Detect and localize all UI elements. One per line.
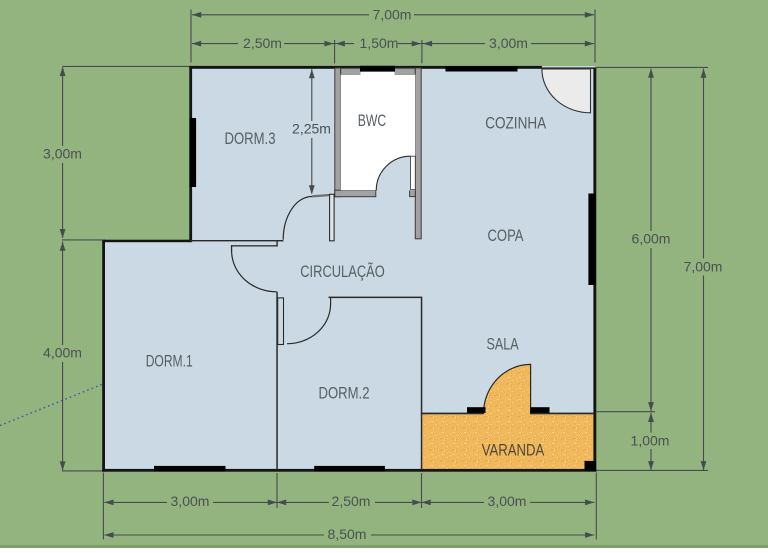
svg-text:3,00m: 3,00m [171, 493, 210, 509]
svg-text:3,00m: 3,00m [489, 35, 528, 51]
svg-text:COZINHA: COZINHA [485, 114, 546, 132]
svg-text:DORM.1: DORM.1 [146, 353, 193, 371]
svg-text:1,00m: 1,00m [631, 432, 670, 448]
svg-text:2,50m: 2,50m [332, 493, 371, 509]
svg-text:BWC: BWC [358, 112, 387, 130]
svg-text:DORM.3: DORM.3 [225, 130, 276, 148]
svg-text:1,50m: 1,50m [360, 35, 399, 51]
svg-text:DORM.2: DORM.2 [319, 384, 370, 402]
svg-text:3,00m: 3,00m [488, 493, 527, 509]
svg-text:2,50m: 2,50m [243, 35, 282, 51]
svg-text:7,00m: 7,00m [373, 7, 412, 23]
svg-text:CIRCULAÇÃO: CIRCULAÇÃO [300, 261, 385, 281]
svg-text:SALA: SALA [487, 335, 519, 353]
svg-text:6,00m: 6,00m [632, 231, 671, 247]
svg-text:4,00m: 4,00m [43, 345, 82, 361]
svg-text:8,50m: 8,50m [328, 526, 367, 542]
svg-text:2,25m: 2,25m [292, 121, 331, 137]
svg-text:COPA: COPA [488, 227, 524, 245]
svg-text:7,00m: 7,00m [684, 259, 723, 275]
svg-text:3,00m: 3,00m [43, 146, 82, 162]
svg-text:VARANDA: VARANDA [482, 441, 545, 459]
